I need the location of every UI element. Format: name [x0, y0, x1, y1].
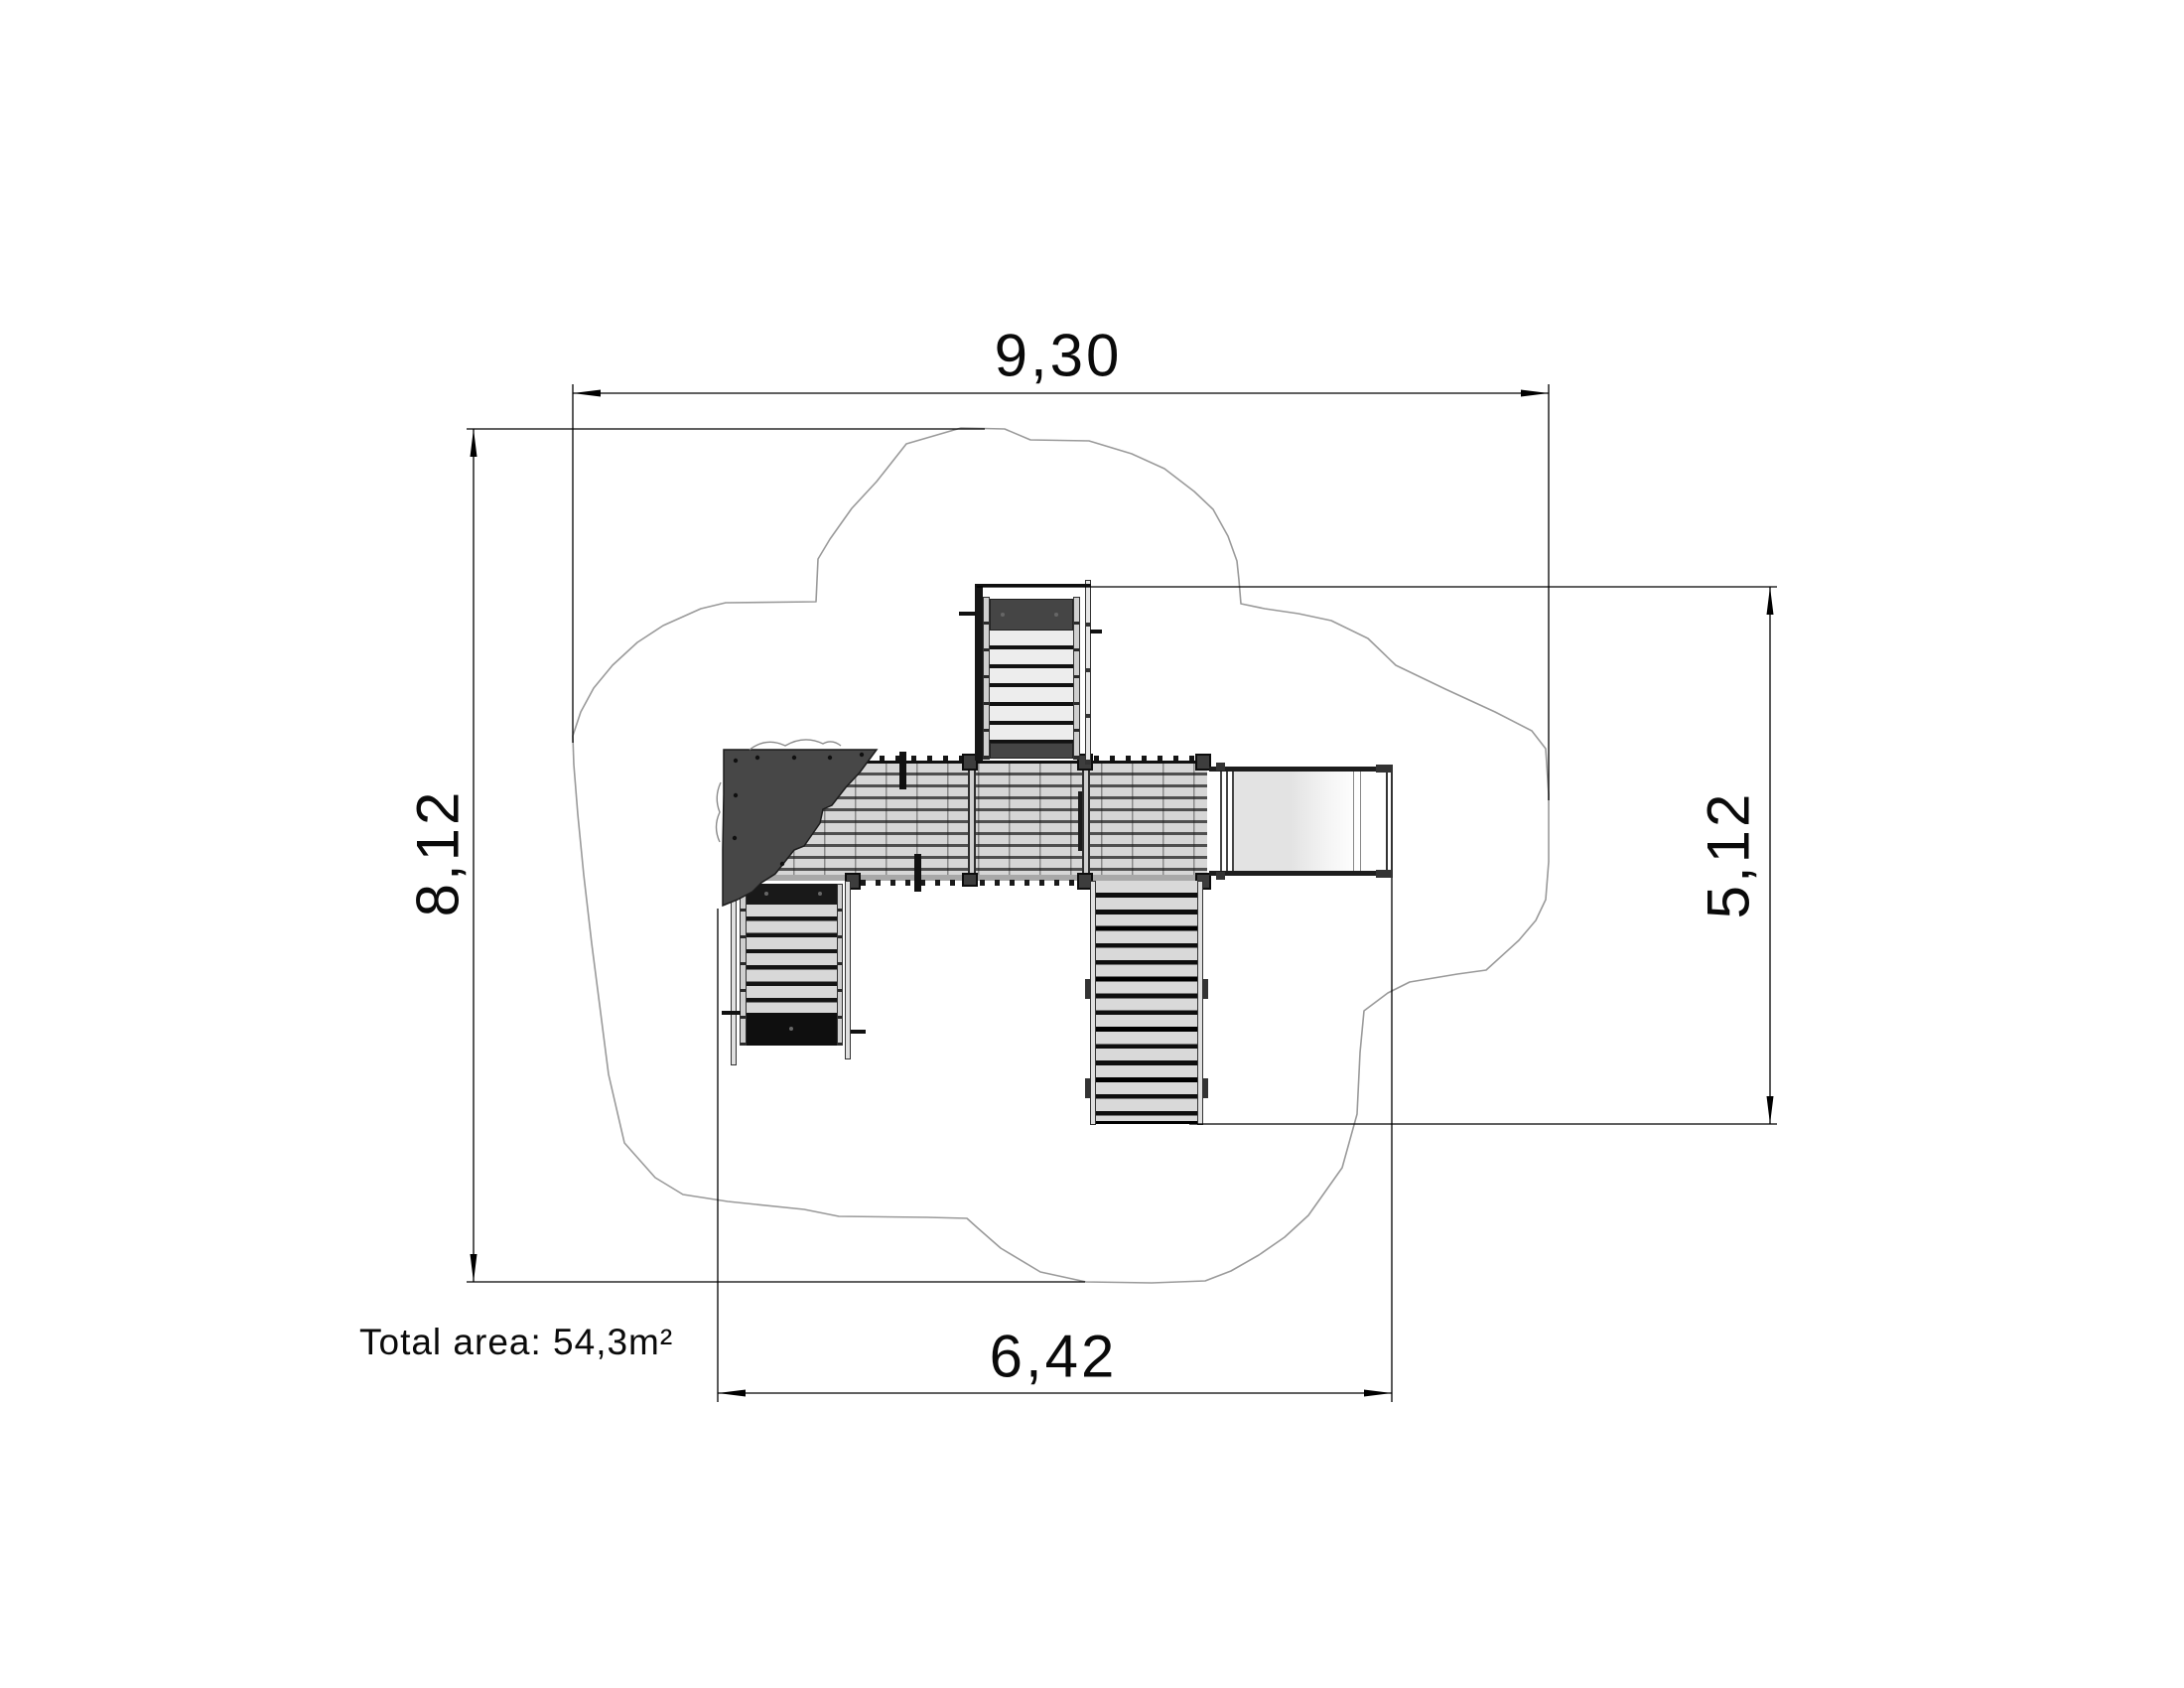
arrow-down-icon: [1767, 1096, 1774, 1124]
arrow-left-icon: [573, 390, 601, 397]
arrow-down-icon: [471, 1254, 478, 1282]
arrow-right-icon: [1521, 390, 1549, 397]
extension-lines: [467, 384, 1777, 1402]
dimension-lines: [474, 393, 1770, 1393]
dim-label-total-depth: 8,12: [404, 789, 473, 917]
total-area-label: Total area: 54,3m²: [359, 1322, 673, 1363]
arrow-up-icon: [1767, 587, 1774, 615]
climbing-roof-sail: [723, 750, 877, 906]
arrow-right-icon: [1364, 1390, 1392, 1397]
playground-plan-drawing: 9,30 8,12 5,12 6,42 Total area: 54,3m²: [0, 0, 2184, 1688]
roof-scallop-top: [750, 740, 841, 750]
dim-label-total-width: 9,30: [995, 322, 1123, 390]
dimension-arrowheads: [471, 390, 1774, 1397]
dim-label-structure-width: 6,42: [990, 1323, 1118, 1391]
roof-scallop-left: [717, 782, 722, 842]
arrow-left-icon: [718, 1390, 746, 1397]
arrow-up-icon: [471, 429, 478, 457]
annotation-layer: [0, 0, 2184, 1688]
dim-label-structure-depth: 5,12: [1695, 791, 1763, 919]
